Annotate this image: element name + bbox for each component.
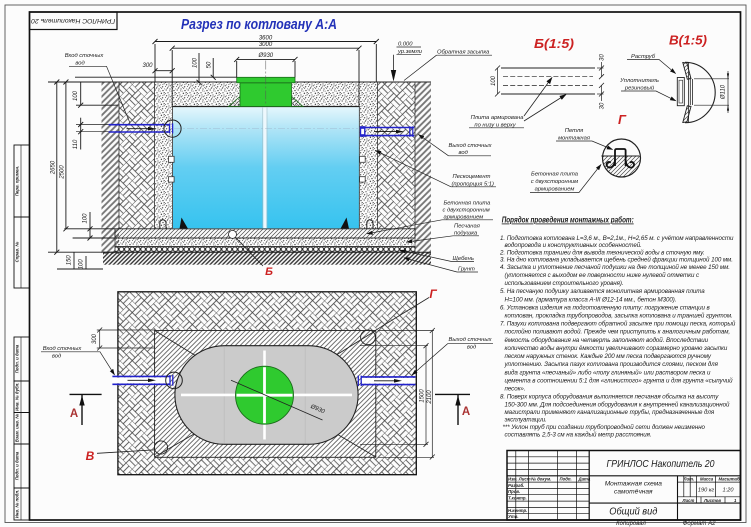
svg-text:магистрали применяют канализац: магистрали применяют канализационные тру… xyxy=(505,409,715,416)
svg-text:Бетонная плита: Бетонная плита xyxy=(531,172,579,178)
svg-text:Т.контр.: Т.контр. xyxy=(508,495,527,500)
svg-text:Изм. Лист: Изм. Лист xyxy=(508,477,531,482)
svg-text:Уплотнитель: Уплотнитель xyxy=(619,78,659,84)
svg-text:с двухсторонним: с двухсторонним xyxy=(531,179,578,185)
svg-text:Разраб.: Разраб. xyxy=(508,483,524,488)
svg-text:150-300 мм. Для подсоединения: 150-300 мм. Для подсоединения оборудован… xyxy=(505,401,730,408)
svg-text:Плита армирована: Плита армирована xyxy=(471,115,525,121)
svg-text:Взам. инв. №: Взам. инв. № xyxy=(15,414,20,442)
svg-text:Перв. примен.: Перв. примен. xyxy=(15,166,20,196)
svg-text:190 кг: 190 кг xyxy=(698,488,715,494)
svg-text:Б: Б xyxy=(265,266,273,278)
svg-text:подушка: подушка xyxy=(454,230,478,236)
svg-text:300: 300 xyxy=(92,333,98,344)
svg-text:Пров.: Пров. xyxy=(508,489,520,494)
svg-text:песок».: песок». xyxy=(505,386,526,393)
svg-text:2100: 2100 xyxy=(427,390,433,405)
svg-text:вод: вод xyxy=(459,150,469,156)
svg-text:ГРИНЛОС Накопитель 20: ГРИНЛОС Накопитель 20 xyxy=(607,458,715,470)
svg-text:ГРИНЛОС Накопитель 20: ГРИНЛОС Накопитель 20 xyxy=(31,17,115,24)
svg-text:Справ. №: Справ. № xyxy=(15,242,20,263)
svg-text:(уплотняется с выходом ее пове: (уплотняется с выходом ее поверхности ни… xyxy=(505,272,701,279)
svg-text:1. Подготовка котлована L=3,6: 1. Подготовка котлована L=3,6 м., В=2,1м… xyxy=(500,235,734,242)
svg-text:7. Пазухи котлована подвергают: 7. Пазухи котлована подвергают обратной … xyxy=(500,321,736,328)
svg-text:Петля: Петля xyxy=(565,128,583,134)
svg-text:100: 100 xyxy=(491,75,497,86)
svg-text:А: А xyxy=(462,406,470,418)
svg-text:котлован, прокладка трубопрово: котлован, прокладка трубопроводов, засып… xyxy=(505,313,733,320)
svg-text:100: 100 xyxy=(192,57,198,68)
svg-text:Раструб: Раструб xyxy=(631,54,656,60)
svg-text:Инв. № дубл.: Инв. № дубл. xyxy=(15,383,20,411)
svg-text:песком наружных стенок. Каждые: песком наружных стенок. Каждые 200 мм пе… xyxy=(505,353,712,360)
svg-text:Общий вид: Общий вид xyxy=(609,506,657,518)
svg-text:30: 30 xyxy=(600,102,606,109)
svg-text:Б(1:5): Б(1:5) xyxy=(534,36,574,51)
svg-text:100: 100 xyxy=(73,90,79,101)
svg-text:ёмкость оборудования на четвер: ёмкость оборудования на четверть заполня… xyxy=(505,337,709,344)
svg-text:Масштаб: Масштаб xyxy=(719,477,740,482)
svg-text:Лист: Лист xyxy=(682,498,695,503)
svg-text:Разрез по котловану А:А: Разрез по котловану А:А xyxy=(181,17,337,33)
svg-text:Инв. № подл.: Инв. № подл. xyxy=(15,490,20,519)
svg-text:вида грунта «песчаный» либо «п: вида грунта «песчаный» либо «полу глинян… xyxy=(505,369,711,376)
svg-text:Лит.: Лит. xyxy=(683,477,695,482)
svg-text:6. Установка изделия на подгот: 6. Установка изделия на подготовленную п… xyxy=(500,304,710,311)
svg-text:Бетонная плита: Бетонная плита xyxy=(444,201,492,207)
svg-text:Ø930: Ø930 xyxy=(257,53,273,59)
svg-text:А: А xyxy=(70,408,78,420)
svg-text:2650: 2650 xyxy=(51,160,57,175)
svg-text:4. Засыпка и уплотнение песчан: 4. Засыпка и уплотнение песчаной подушки… xyxy=(500,264,730,271)
svg-text:Выход сточных: Выход сточных xyxy=(449,337,493,343)
svg-text:В: В xyxy=(86,449,95,463)
svg-text:составлять 2,5-3 см на каждый: составлять 2,5-3 см на каждый метр расст… xyxy=(505,432,652,439)
svg-text:вод: вод xyxy=(467,344,477,350)
svg-text:100: 100 xyxy=(79,259,85,270)
svg-text:5. На песчаную подушку заливае: 5. На песчаную подушку заливается моноли… xyxy=(500,288,705,295)
svg-text:Масса: Масса xyxy=(700,477,714,482)
svg-text:Вход сточных: Вход сточных xyxy=(65,53,105,59)
svg-text:3. На дно котлована укладывает: 3. На дно котлована укладывается щебень … xyxy=(500,257,733,264)
svg-text:Формат А2: Формат А2 xyxy=(683,521,716,527)
svg-text:с двухсторонним: с двухсторонним xyxy=(443,208,490,214)
svg-text:Песчаная: Песчаная xyxy=(454,223,480,229)
svg-text:50: 50 xyxy=(207,61,213,68)
svg-text:Монтажная схема: Монтажная схема xyxy=(605,481,663,488)
svg-text:2500: 2500 xyxy=(60,165,66,180)
svg-text:300: 300 xyxy=(142,63,153,69)
svg-text:1:20: 1:20 xyxy=(723,488,735,494)
svg-text:армированием: армированием xyxy=(535,187,575,193)
svg-text:110: 110 xyxy=(73,139,79,149)
svg-text:Подп. и дата: Подп. и дата xyxy=(15,344,20,373)
svg-text:100: 100 xyxy=(82,213,88,224)
svg-text:количество воды внутри ёмкости: количество воды внутри ёмкости увеличива… xyxy=(505,345,728,352)
svg-text:Утв.: Утв. xyxy=(508,514,519,519)
svg-text:Г: Г xyxy=(618,112,627,127)
svg-text:монтажная: монтажная xyxy=(558,136,590,142)
svg-text:Н.контр.: Н.контр. xyxy=(508,508,527,513)
svg-text:Грунт: Грунт xyxy=(458,266,475,272)
svg-text:№ докум.: № докум. xyxy=(531,477,551,482)
svg-text:резиновый: резиновый xyxy=(624,85,655,92)
svg-text:3600: 3600 xyxy=(259,35,273,41)
svg-text:Копировал: Копировал xyxy=(616,521,646,527)
svg-text:30: 30 xyxy=(600,54,606,61)
svg-text:В(1:5): В(1:5) xyxy=(669,33,707,48)
svg-text:Подп. и дата: Подп. и дата xyxy=(15,451,20,480)
svg-text:водопровода и конструктивных о: водопровода и конструктивных особенносте… xyxy=(505,242,642,249)
svg-text:Дата: Дата xyxy=(578,477,591,482)
svg-text:150: 150 xyxy=(66,255,72,266)
svg-text:2. Подготовка траншеи для выво: 2. Подготовка траншеи для вывода техниче… xyxy=(499,249,705,256)
svg-text:Щебень: Щебень xyxy=(453,256,474,262)
svg-text:3000: 3000 xyxy=(259,42,273,48)
svg-text:Обратная засыпка: Обратная засыпка xyxy=(437,50,490,56)
svg-text:ур.земли: ур.земли xyxy=(397,49,423,55)
svg-text:Листов: Листов xyxy=(703,498,721,503)
svg-text:вод: вод xyxy=(52,353,62,359)
svg-text:Ø110: Ø110 xyxy=(720,84,726,100)
svg-text:0.000: 0.000 xyxy=(398,41,413,47)
svg-text:Пескоцемент: Пескоцемент xyxy=(453,174,491,180)
svg-text:использованием строительного у: использованием строительного уровня). xyxy=(505,280,624,287)
svg-text:Выход сточных: Выход сточных xyxy=(449,143,493,149)
svg-text:1500: 1500 xyxy=(420,389,426,403)
svg-text:уплотнению. Засыпка пазух котл: уплотнению. Засыпка пазух котлована прои… xyxy=(504,361,719,368)
svg-text:Г: Г xyxy=(429,287,437,301)
svg-text:8. Поверх корпуса оборудования: 8. Поверх корпуса оборудования выполняет… xyxy=(500,394,719,401)
svg-text:цемента в соотношении 5:1 для: цемента в соотношении 5:1 для «глинистог… xyxy=(505,377,734,384)
svg-text:послойно поливают водой. Прежд: послойно поливают водой. Прежде чем прис… xyxy=(505,329,731,336)
svg-text:*** Уклон труб при создании тр: *** Уклон труб при создании трубопроводн… xyxy=(503,424,706,431)
svg-text:Н=100 мм. (арматура класса А-I: Н=100 мм. (арматура класса А-III Ø12-14 … xyxy=(505,296,677,303)
svg-text:Порядок проведения монтажных р: Порядок проведения монтажных работ: xyxy=(502,216,634,225)
svg-text:эксплуатации.: эксплуатации. xyxy=(505,417,547,424)
svg-text:Подп.: Подп. xyxy=(560,477,572,482)
svg-text:Вход сточных: Вход сточных xyxy=(43,346,83,352)
svg-text:самотёчная: самотёчная xyxy=(614,489,653,496)
svg-text:вод: вод xyxy=(75,60,85,66)
